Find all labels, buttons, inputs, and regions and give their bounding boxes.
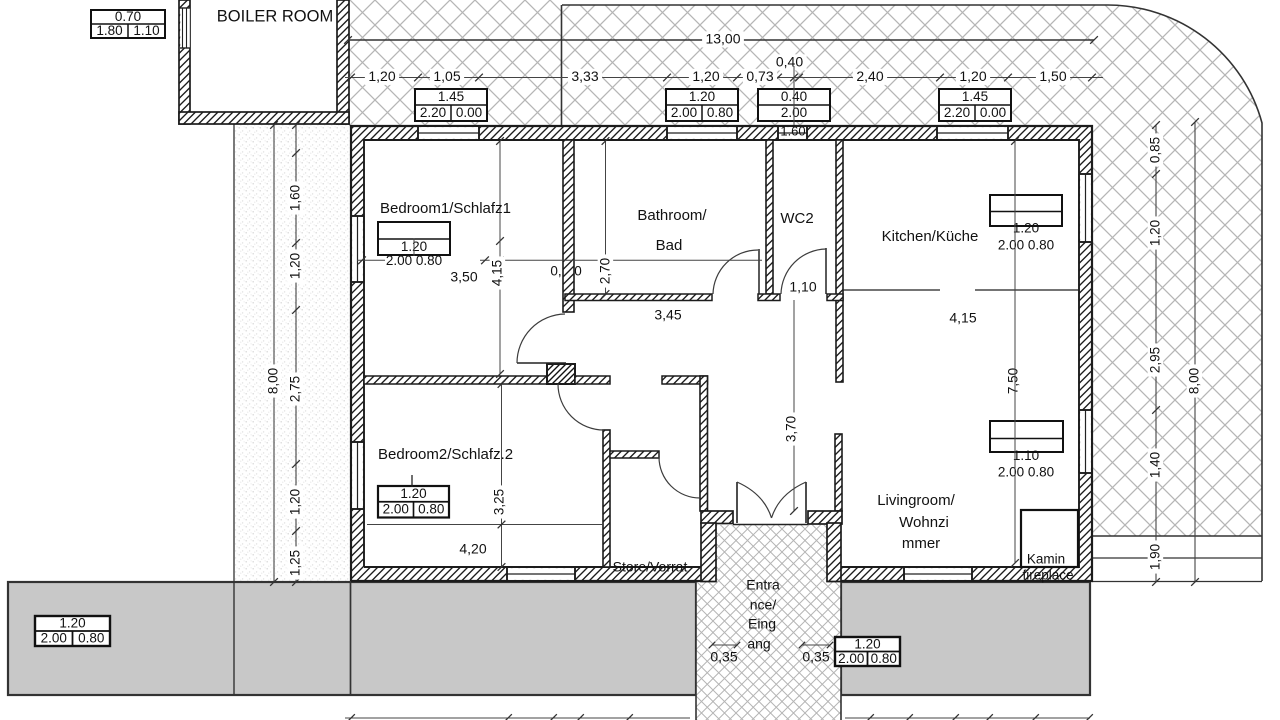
svg-text:2.00: 2.00: [41, 631, 67, 646]
svg-text:2.00: 2.00: [383, 502, 409, 517]
svg-text:Store/Vorrat: Store/Vorrat: [613, 559, 688, 575]
svg-text:2,70: 2,70: [598, 258, 613, 284]
svg-text:0,40: 0,40: [776, 54, 803, 70]
svg-text:2.20: 2.20: [944, 105, 970, 120]
svg-text:2.00 0.80: 2.00 0.80: [998, 465, 1054, 480]
svg-text:Bathroom/: Bathroom/: [637, 207, 707, 224]
svg-text:0,35: 0,35: [710, 649, 737, 665]
svg-text:nce/: nce/: [750, 597, 777, 613]
svg-text:2.00 0.80: 2.00 0.80: [998, 238, 1054, 253]
svg-text:1.20: 1.20: [689, 89, 715, 104]
svg-text:Entra: Entra: [746, 577, 780, 593]
svg-text:1.45: 1.45: [438, 89, 464, 104]
svg-text:1.10: 1.10: [1013, 448, 1039, 463]
svg-text:Bedroom2/Schlafz.2: Bedroom2/Schlafz.2: [378, 446, 513, 463]
svg-text:1,25: 1,25: [288, 550, 303, 576]
svg-text:BOILER ROOM: BOILER ROOM: [217, 7, 333, 25]
svg-text:ang: ang: [747, 636, 770, 652]
svg-text:2,40: 2,40: [856, 68, 883, 84]
svg-text:1.20: 1.20: [1013, 221, 1039, 236]
svg-text:8,00: 8,00: [1187, 368, 1202, 394]
svg-text:8,00: 8,00: [266, 368, 281, 394]
svg-text:2,75: 2,75: [288, 376, 303, 402]
svg-text:0,: 0,: [550, 264, 561, 279]
svg-text:3,33: 3,33: [571, 68, 598, 84]
svg-text:4,20: 4,20: [459, 541, 486, 557]
svg-text:fireplace: fireplace: [1022, 568, 1073, 583]
svg-text:1,60: 1,60: [288, 185, 303, 211]
svg-text:0.80: 0.80: [707, 105, 733, 120]
svg-text:0,85: 0,85: [1148, 137, 1163, 163]
svg-text:1,40: 1,40: [1148, 452, 1163, 478]
svg-text:4,15: 4,15: [949, 310, 976, 326]
svg-text:2.20: 2.20: [420, 105, 446, 120]
svg-text:2.00: 2.00: [838, 651, 864, 666]
svg-text:1.80: 1.80: [96, 23, 122, 38]
svg-text:0.80: 0.80: [871, 651, 897, 666]
svg-text:1.20: 1.20: [854, 636, 880, 651]
svg-text:1.45: 1.45: [962, 89, 988, 104]
svg-text:2,95: 2,95: [1148, 347, 1163, 373]
svg-text:1,20: 1,20: [288, 489, 303, 515]
svg-text:1,10: 1,10: [789, 279, 816, 295]
svg-text:Kamin: Kamin: [1027, 552, 1065, 567]
svg-text:Eing: Eing: [748, 616, 776, 632]
svg-text:4,15: 4,15: [490, 260, 505, 286]
svg-text:0.00: 0.00: [980, 105, 1006, 120]
svg-text:7,50: 7,50: [1006, 368, 1021, 394]
svg-text:1,20: 1,20: [368, 68, 395, 84]
svg-text:1,20: 1,20: [288, 253, 303, 279]
svg-text:0,73: 0,73: [746, 68, 773, 84]
svg-text:Bad: Bad: [656, 237, 683, 254]
svg-text:0.80: 0.80: [418, 502, 444, 517]
svg-text:1.10: 1.10: [133, 23, 159, 38]
svg-text:0: 0: [574, 264, 582, 279]
svg-text:1,20: 1,20: [692, 68, 719, 84]
svg-text:3,25: 3,25: [492, 489, 507, 515]
svg-text:Wohnzi: Wohnzi: [899, 514, 949, 531]
svg-text:3,70: 3,70: [784, 416, 799, 442]
svg-text:3,50: 3,50: [450, 269, 477, 285]
svg-text:WC2: WC2: [780, 210, 813, 227]
svg-text:mmer: mmer: [902, 535, 940, 552]
svg-text:1,90: 1,90: [1148, 544, 1163, 570]
svg-text:1,20: 1,20: [959, 68, 986, 84]
svg-text:Bedroom1/Schlafz1: Bedroom1/Schlafz1: [380, 200, 511, 217]
svg-text:1,20: 1,20: [1148, 220, 1163, 246]
svg-text:1,05: 1,05: [433, 68, 460, 84]
svg-text:0.80: 0.80: [78, 631, 104, 646]
svg-text:1,50: 1,50: [1039, 68, 1066, 84]
svg-text:0,35: 0,35: [802, 649, 829, 665]
svg-text:0.70: 0.70: [115, 9, 141, 24]
svg-text:Livingroom/: Livingroom/: [877, 492, 955, 509]
svg-text:0.00: 0.00: [456, 105, 482, 120]
svg-text:1.60: 1.60: [780, 123, 805, 138]
svg-text:Kitchen/Küche: Kitchen/Küche: [882, 228, 979, 245]
svg-text:13,00: 13,00: [705, 31, 740, 47]
svg-text:1.20: 1.20: [59, 616, 85, 631]
svg-text:1.20: 1.20: [400, 486, 426, 501]
svg-text:2.00: 2.00: [671, 105, 697, 120]
svg-text:3,45: 3,45: [654, 307, 681, 323]
